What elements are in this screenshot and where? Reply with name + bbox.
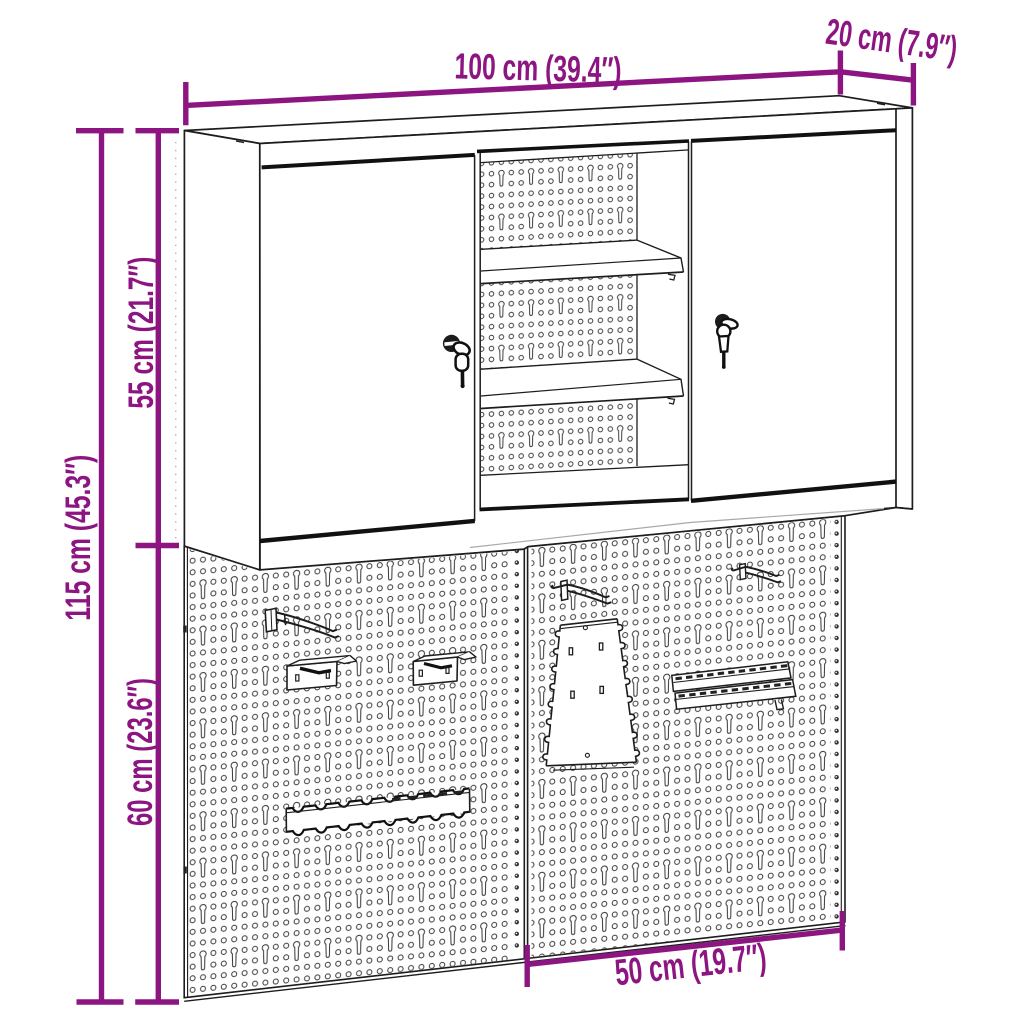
svg-text:55 cm (21.7″): 55 cm (21.7″) [122,257,161,409]
svg-text:115 cm (45.3″): 115 cm (45.3″) [59,455,98,621]
svg-text:60 cm (23.6″): 60 cm (23.6″) [121,678,160,826]
svg-text:100 cm (39.4″): 100 cm (39.4″) [454,45,622,90]
svg-text:20 cm (7.9″): 20 cm (7.9″) [824,11,960,70]
